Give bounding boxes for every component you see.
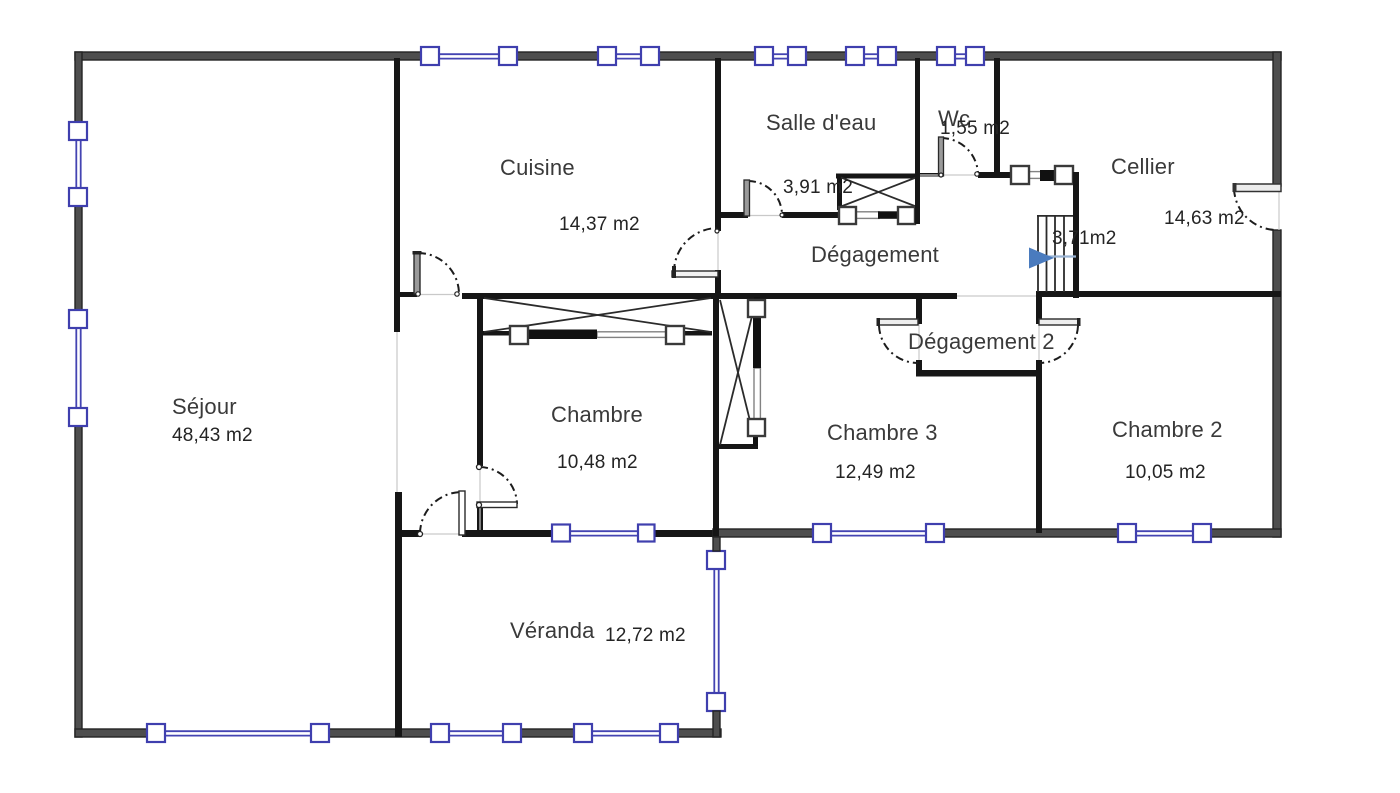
- svg-text:14,63 m2: 14,63 m2: [1164, 208, 1245, 229]
- svg-text:3,91 m2: 3,91 m2: [783, 177, 853, 198]
- svg-text:Chambre 2: Chambre 2: [1112, 417, 1223, 442]
- svg-text:48,43 m2: 48,43 m2: [172, 425, 253, 446]
- svg-text:Salle d'eau: Salle d'eau: [766, 110, 876, 135]
- svg-text:Séjour: Séjour: [172, 394, 237, 419]
- svg-text:Véranda: Véranda: [510, 618, 595, 643]
- svg-text:Dégagement: Dégagement: [811, 242, 939, 267]
- svg-text:12,49 m2: 12,49 m2: [835, 462, 916, 483]
- svg-text:Chambre 3: Chambre 3: [827, 420, 938, 445]
- svg-text:Chambre: Chambre: [551, 402, 643, 427]
- svg-text:Cuisine: Cuisine: [500, 155, 575, 180]
- svg-text:3,71m2: 3,71m2: [1052, 228, 1117, 249]
- svg-text:12,72 m2: 12,72 m2: [605, 625, 686, 646]
- svg-text:14,37 m2: 14,37 m2: [559, 214, 640, 235]
- svg-text:1,55 m2: 1,55 m2: [940, 118, 1010, 139]
- svg-text:10,48 m2: 10,48 m2: [557, 452, 638, 473]
- svg-text:Dégagement 2: Dégagement 2: [908, 329, 1055, 354]
- svg-text:10,05 m2: 10,05 m2: [1125, 462, 1206, 483]
- svg-text:Cellier: Cellier: [1111, 154, 1175, 179]
